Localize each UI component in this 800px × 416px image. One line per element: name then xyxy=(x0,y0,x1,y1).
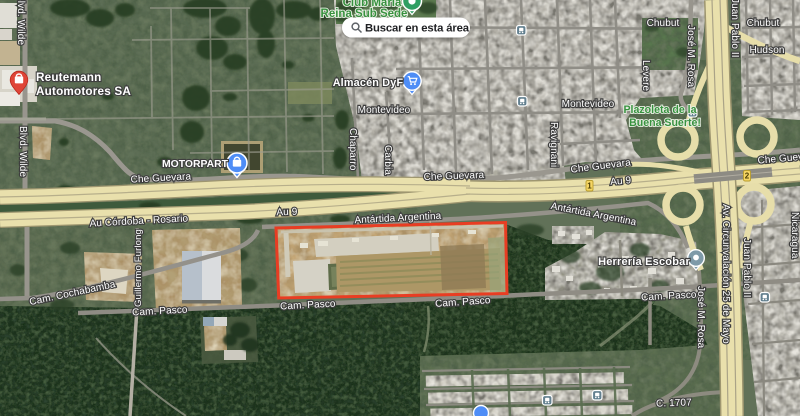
svg-text:Che Guevara: Che Guevara xyxy=(423,170,484,183)
svg-text:Herrería Escobar: Herrería Escobar xyxy=(598,256,690,268)
svg-text:Chaparro: Chaparro xyxy=(347,128,358,171)
svg-text:Levere: Levere xyxy=(640,60,651,92)
svg-text:Nicaragua: Nicaragua xyxy=(789,212,800,259)
svg-text:Montevideo: Montevideo xyxy=(562,99,615,110)
svg-text:Almacén DyF: Almacén DyF xyxy=(333,77,404,89)
svg-text:José M. Rosa: José M. Rosa xyxy=(685,25,696,88)
svg-text:Plazoleta de la: Plazoleta de la xyxy=(623,104,696,116)
svg-text:Buena Suerte!: Buena Suerte! xyxy=(629,117,701,129)
svg-text:Av. Circunvalación 25 de Mayo: Av. Circunvalación 25 de Mayo xyxy=(720,204,731,344)
svg-text:Ravignani: Ravignani xyxy=(548,122,559,167)
svg-text:Juan Pablo II: Juan Pablo II xyxy=(729,0,740,58)
svg-text:Automotores SA: Automotores SA xyxy=(36,85,131,98)
svg-text:Guillermo Furlong: Guillermo Furlong xyxy=(133,229,144,307)
svg-text:1: 1 xyxy=(587,182,592,191)
svg-text:Montevideo: Montevideo xyxy=(358,105,411,116)
svg-text:Blvd. Wilde: Blvd. Wilde xyxy=(17,126,28,177)
svg-text:Au 9: Au 9 xyxy=(610,175,632,188)
svg-text:José M. Rosa: José M. Rosa xyxy=(695,286,706,349)
svg-text:MOTORPART: MOTORPART xyxy=(162,159,229,170)
svg-text:2: 2 xyxy=(745,172,750,181)
svg-text:Blvd. Wilde: Blvd. Wilde xyxy=(15,0,26,45)
svg-text:C. 1707: C. 1707 xyxy=(656,397,692,409)
svg-text:Reutemann: Reutemann xyxy=(36,71,101,84)
svg-text:Chubut: Chubut xyxy=(747,18,780,29)
svg-text:Carbia: Carbia xyxy=(382,145,393,175)
svg-text:Buscar en esta área: Buscar en esta área xyxy=(365,23,470,35)
svg-text:Chubut: Chubut xyxy=(647,18,680,29)
svg-text:Au 9: Au 9 xyxy=(276,207,298,219)
svg-text:Hudson: Hudson xyxy=(749,45,784,56)
svg-text:Juan Pablo II: Juan Pablo II xyxy=(741,238,752,298)
